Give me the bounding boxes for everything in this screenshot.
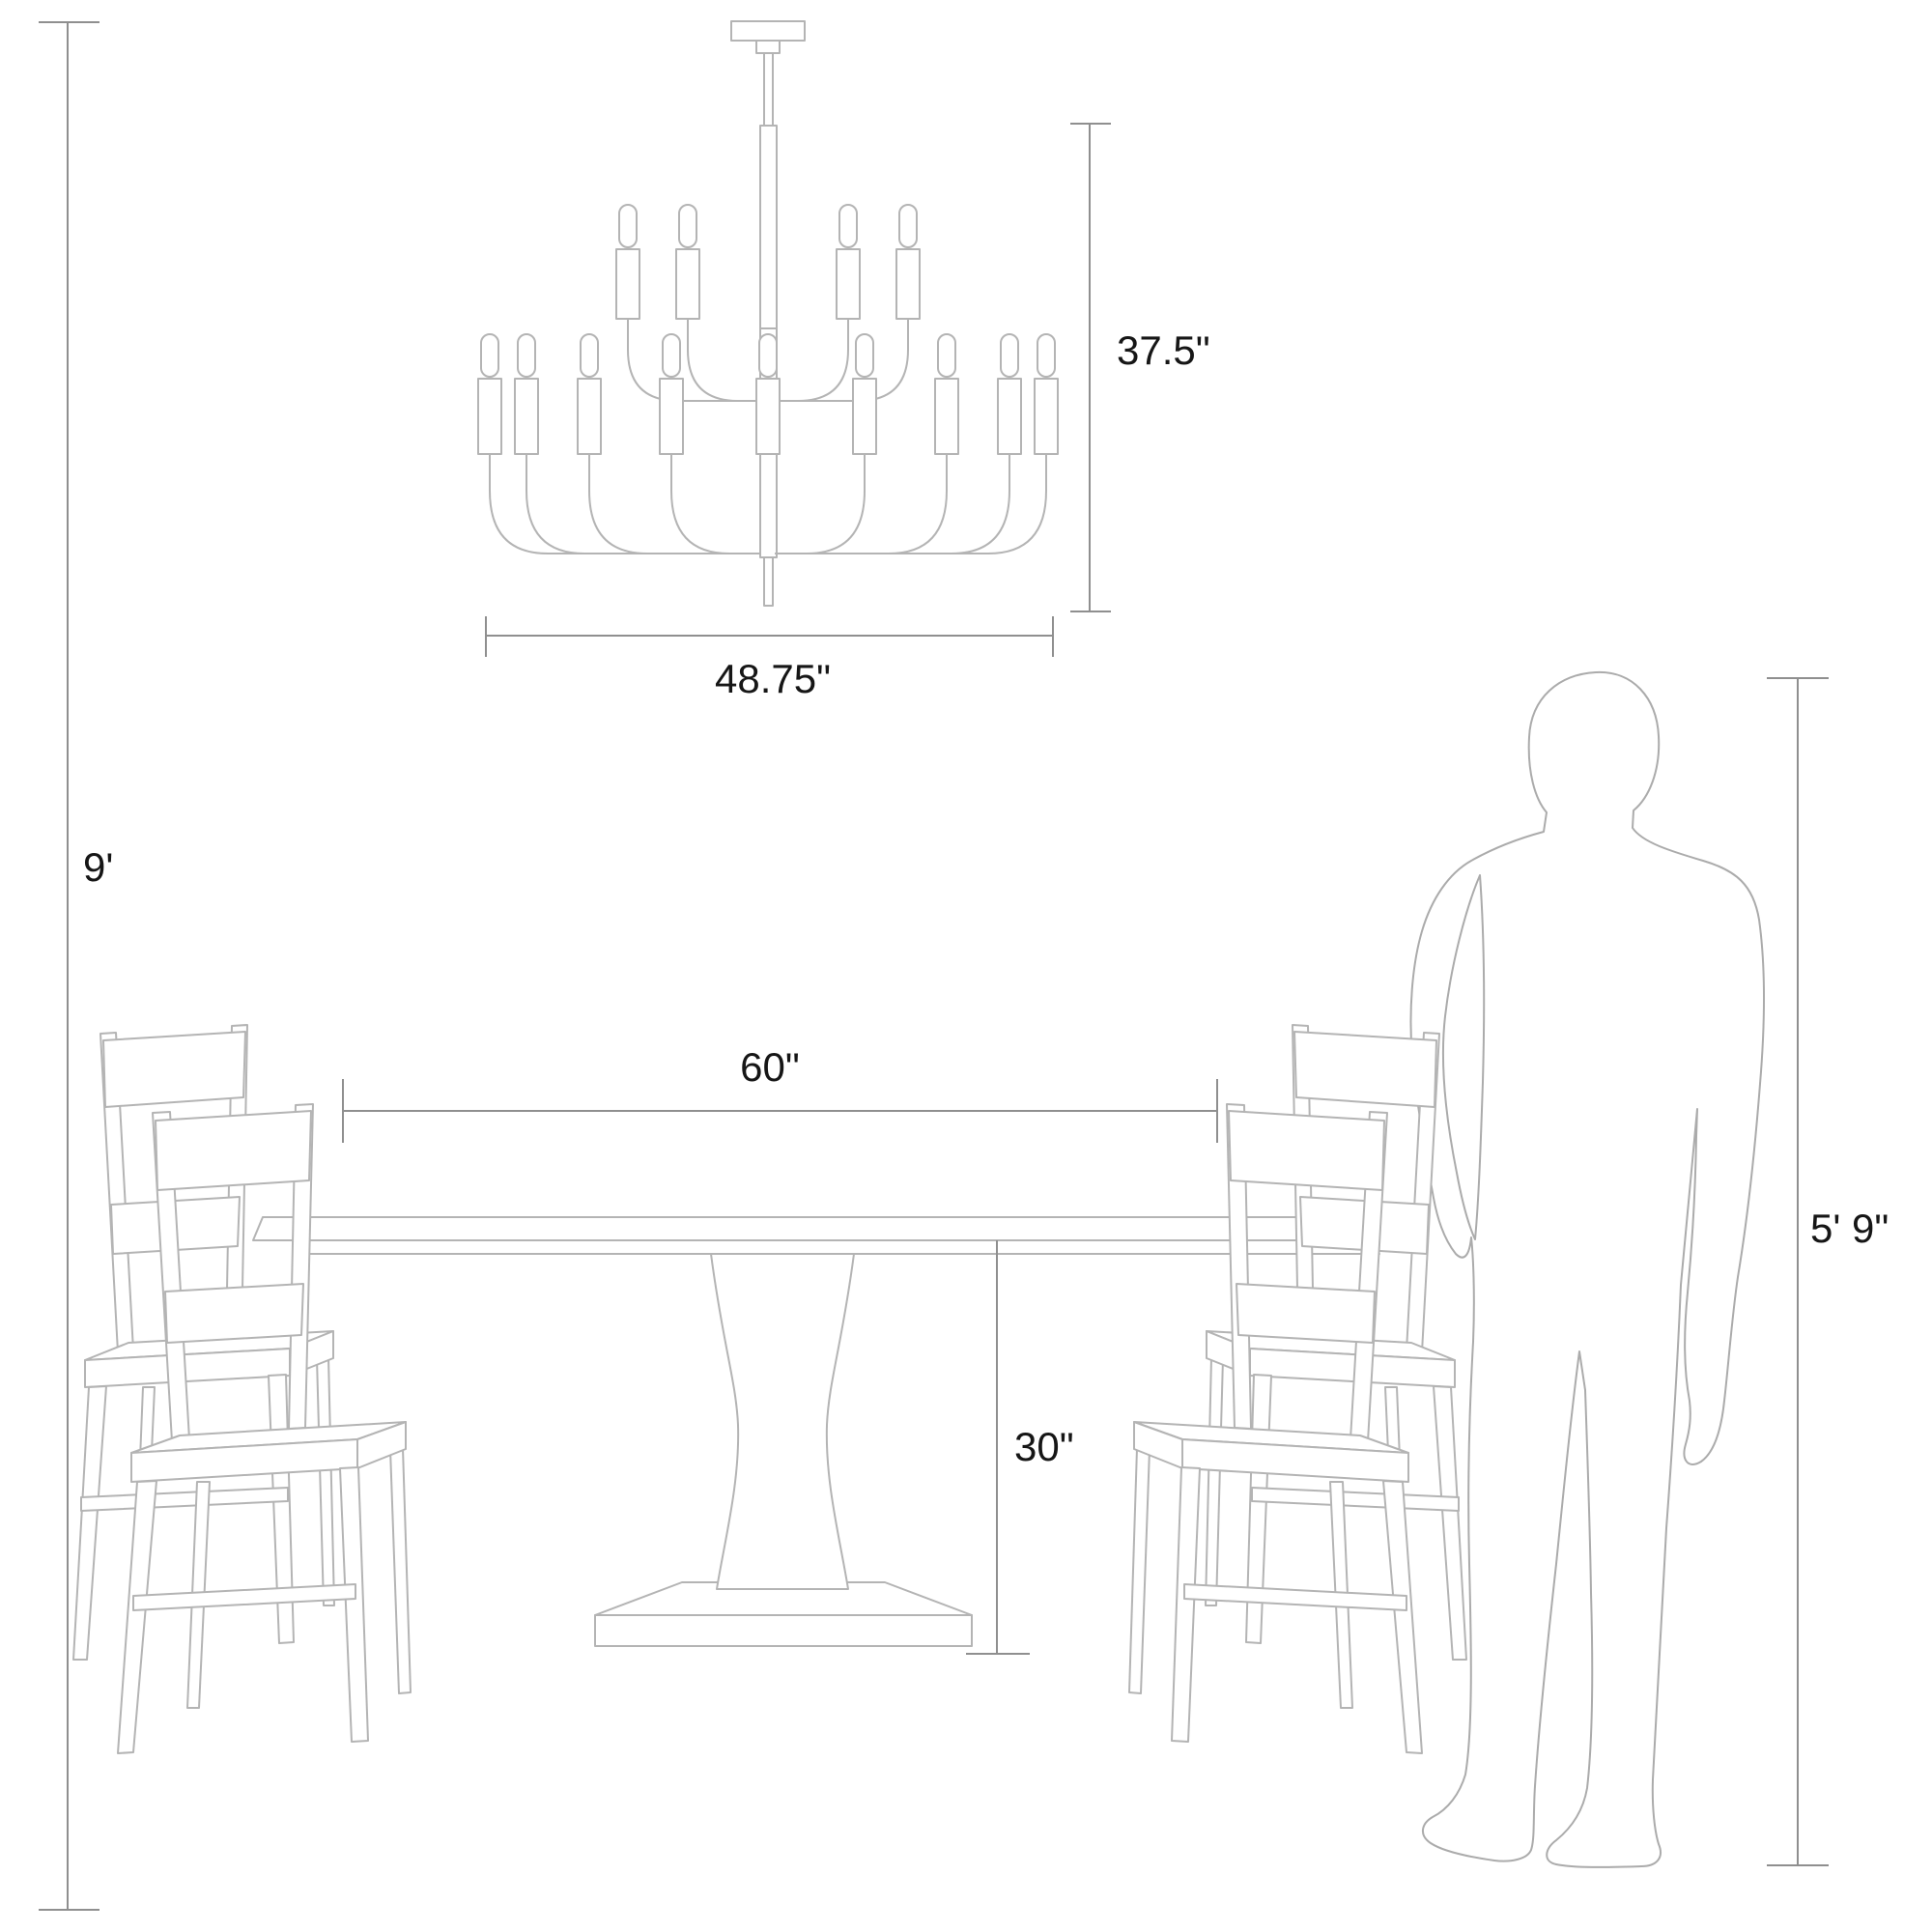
- chandelier-arm: [776, 454, 1046, 554]
- ceiling-height-dimension: [39, 22, 99, 1910]
- chandelier-arm: [776, 454, 1009, 554]
- table-pedestal: [711, 1254, 854, 1589]
- chandelier-arm: [688, 319, 760, 401]
- table-top: [253, 1217, 1389, 1240]
- dining-chairs-left: [73, 1025, 411, 1753]
- dining-chairs-right: [1129, 1025, 1466, 1753]
- chandelier-height-dimension: [1070, 124, 1111, 611]
- chandelier-arm: [589, 454, 760, 554]
- table-width-label: 60": [740, 1044, 800, 1090]
- chandelier-candles-lower: [478, 334, 1058, 454]
- chandelier-arm: [776, 454, 947, 554]
- chandelier-arm: [776, 319, 848, 401]
- chandelier-arm: [776, 454, 865, 554]
- chandelier: [478, 21, 1058, 606]
- chandelier-arm: [776, 319, 908, 401]
- chandelier-stem-tip: [764, 557, 773, 606]
- chandelier-height-label: 37.5": [1117, 327, 1210, 373]
- table-height-label: 30": [1014, 1424, 1074, 1469]
- person-height-label: 5' 9": [1810, 1206, 1889, 1251]
- table-base-front: [595, 1615, 972, 1646]
- chandelier-canopy: [731, 21, 805, 41]
- person-outline: [1410, 672, 1764, 1867]
- chandelier-arm: [490, 454, 760, 554]
- chandelier-width-label: 48.75": [715, 656, 831, 701]
- chandelier-width-dimension: [486, 616, 1053, 657]
- chandelier-downrod: [764, 53, 773, 126]
- chandelier-arm: [628, 319, 760, 401]
- ceiling-height-label: 9': [83, 844, 113, 890]
- person-silhouette: [1410, 672, 1764, 1867]
- chandelier-arm: [526, 454, 760, 554]
- dimension-diagram: 9' 37.5" 48.75" 60" 30" 5' 9": [0, 0, 1932, 1932]
- person-height-dimension: [1767, 678, 1829, 1865]
- chandelier-canopy-connector: [756, 41, 780, 53]
- chandelier-arm: [671, 454, 760, 554]
